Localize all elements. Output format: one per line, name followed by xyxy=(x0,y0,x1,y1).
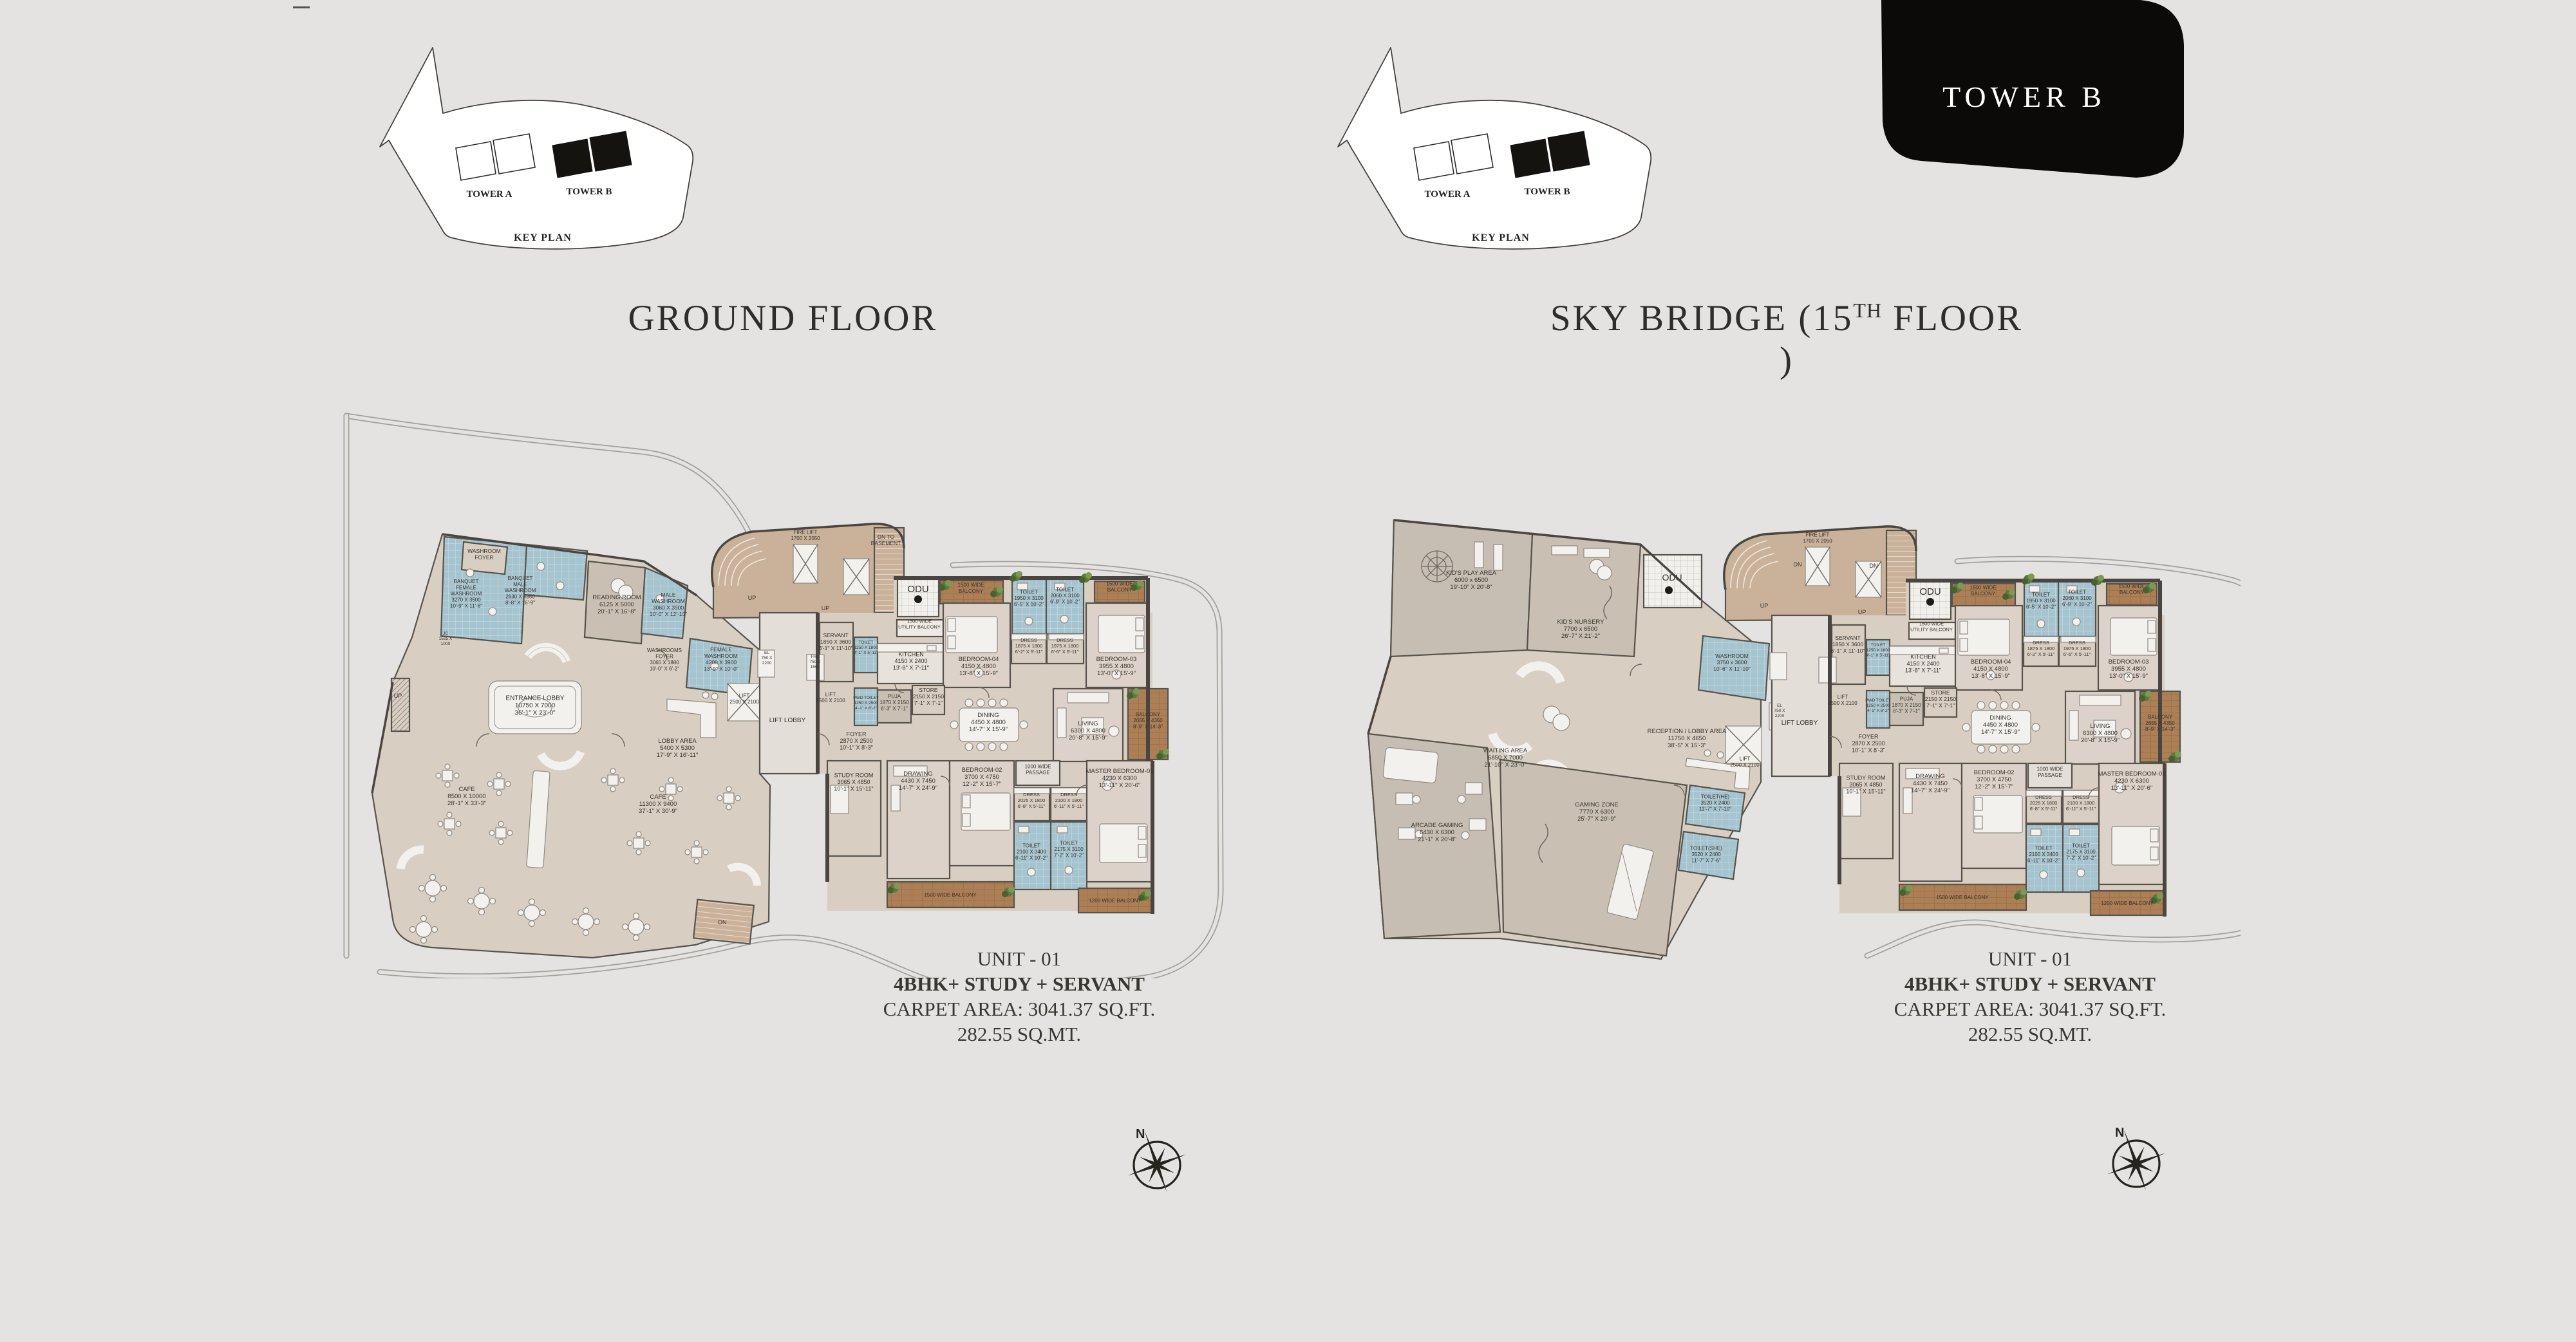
svg-text:BANQUETMALEWASHROOM2630 X 4850: BANQUETMALEWASHROOM2630 X 48508'-8" X 16… xyxy=(505,575,536,606)
crop-mark xyxy=(293,6,310,8)
ground-unit-info: UNIT - 01 4BHK+ STUDY + SERVANT CARPET A… xyxy=(762,946,1277,1047)
unit-carpet-area-sqmt: 282.55 SQ.MT. xyxy=(762,1021,1277,1047)
unit-carpet-area-sqft: CARPET AREA: 3041.37 SQ.FT. xyxy=(762,996,1277,1021)
unit-number: UNIT - 01 xyxy=(762,946,1277,971)
ground-floor-plan: WASHROOMFOYERBANQUETFEMALEWASHROOM3270 X… xyxy=(335,373,1236,978)
svg-text:1000 WIDEPASSAGE: 1000 WIDEPASSAGE xyxy=(1025,763,1051,776)
compass-left: N xyxy=(1120,1121,1191,1198)
svg-text:WASHROOM3750 x 360010'-6" X 11: WASHROOM3750 x 360010'-6" X 11'-10" xyxy=(1713,653,1751,672)
compass-n-label: N xyxy=(2115,1126,2124,1140)
svg-text:FIRE LIFT1700 X 2050: FIRE LIFT1700 X 2050 xyxy=(1803,532,1832,544)
svg-text:ODU: ODU xyxy=(907,584,928,595)
svg-text:BEDROOM-023700 X 475012'-2" X: BEDROOM-023700 X 475012'-2" X 15'-7" xyxy=(1974,769,2015,790)
key-plan-caption: KEY PLAN xyxy=(1472,232,1530,243)
key-plan-left: TOWER A TOWER B KEY PLAN xyxy=(361,39,721,251)
key-plan-tower-a-label: TOWER A xyxy=(1425,189,1471,200)
unit-config: 4BHK+ STUDY + SERVANT xyxy=(1772,971,2288,996)
svg-text:1500 WIDEBALCONY: 1500 WIDEBALCONY xyxy=(2119,583,2145,595)
key-plan-right: TOWER A TOWER B KEY PLAN xyxy=(1319,39,1679,251)
svg-text:FHC750 X1500: FHC750 X1500 xyxy=(810,655,822,669)
key-plan-tower-a-label: TOWER A xyxy=(467,189,512,200)
svg-text:PWD TOILET1250 X 25004'-1" X 8: PWD TOILET1250 X 25004'-1" X 8'-2" xyxy=(853,696,879,711)
key-plan-tower-b-label: TOWER B xyxy=(1525,187,1570,197)
svg-text:UP: UP xyxy=(1858,609,1866,615)
svg-text:LOBBY AREA5400 X 530017'-9" X: LOBBY AREA5400 X 530017'-9" X 16'-11" xyxy=(657,738,699,759)
unit-number: UNIT - 01 xyxy=(1772,946,2288,971)
svg-text:BALCONY2655 X 43508'-9" X 14'-: BALCONY2655 X 43508'-9" X 14'-3" xyxy=(2145,714,2175,732)
svg-text:ODU: ODU xyxy=(1662,572,1682,582)
svg-text:1500 WIDEBALCONY: 1500 WIDEBALCONY xyxy=(958,582,984,594)
sky-amenity-wing xyxy=(1368,520,1786,959)
svg-text:DN: DN xyxy=(1794,561,1802,568)
svg-text:FIRE LIFT1700 X 2050: FIRE LIFT1700 X 2050 xyxy=(791,529,820,541)
ground-floor-title: GROUND FLOOR xyxy=(538,297,1028,339)
svg-text:STUDY ROOM3065 X 485010'-1" X: STUDY ROOM3065 X 485010'-1" X 15'-11" xyxy=(834,772,873,792)
brochure-page: TOWER B TOWER A TOWER B KEY PLAN TOWER A… xyxy=(0,0,2576,1342)
tower-b-badge: TOWER B xyxy=(1845,0,2188,193)
svg-text:LIFT LOBBY: LIFT LOBBY xyxy=(1782,720,1818,727)
svg-text:DN: DN xyxy=(1870,563,1878,569)
compass-rose-icon xyxy=(2100,1120,2170,1197)
svg-text:UP: UP xyxy=(822,605,830,611)
svg-text:UP: UP xyxy=(748,595,757,601)
svg-text:1500 WIDE BALCONY: 1500 WIDE BALCONY xyxy=(924,892,977,898)
svg-text:1200 WIDE BALCONY: 1200 WIDE BALCONY xyxy=(2101,900,2154,906)
svg-text:WASHROOMSFOYER3060 X 188010'-0: WASHROOMSFOYER3060 X 188010'-0" X 6'-2" xyxy=(647,648,682,672)
svg-text:BANQUETFEMALEWASHROOM3270 X 35: BANQUETFEMALEWASHROOM3270 X 350010'-9" X… xyxy=(450,579,482,609)
compass-right: N xyxy=(2100,1120,2170,1197)
svg-text:UP: UP xyxy=(394,693,402,699)
svg-text:BEDROOM-044150 X 480013'-8" X: BEDROOM-044150 X 480013'-8" X 15'-9" xyxy=(959,656,999,677)
svg-text:1500 WIDEBALCONY: 1500 WIDEBALCONY xyxy=(1970,584,1997,597)
svg-text:TOILET(SHE)3520 X 240011'-7" X: TOILET(SHE)3520 X 240011'-7" X 7'-6" xyxy=(1690,846,1722,864)
svg-text:LIFT LOBBY: LIFT LOBBY xyxy=(769,717,806,724)
sky-bridge-title: SKY BRIDGE (15TH FLOOR ) xyxy=(1542,297,2031,381)
svg-text:DRAWING4430 X 745014'-7" X 24': DRAWING4430 X 745014'-7" X 24'-9" xyxy=(1911,773,1950,794)
svg-text:1000 WIDEPASSAGE: 1000 WIDEPASSAGE xyxy=(2037,766,2064,778)
compass-n-label: N xyxy=(1136,1127,1145,1141)
svg-text:WAITING AREA6850 X 700021'-10": WAITING AREA6850 X 700021'-10" X 23'-0" xyxy=(1483,747,1528,769)
svg-text:SERVANT1850 X 36006'-1" X 11'-: SERVANT1850 X 36006'-1" X 11'-10" xyxy=(1830,635,1865,654)
svg-text:KITCHEN4150 X 240013'-8" X 7'-: KITCHEN4150 X 240013'-8" X 7'-11" xyxy=(893,651,929,671)
svg-text:1200 WIDE BALCONY: 1200 WIDE BALCONY xyxy=(1089,898,1142,904)
svg-text:UP: UP xyxy=(1760,602,1769,609)
svg-text:PWD TOILET1250 X 25004'-1" X 8: PWD TOILET1250 X 25004'-1" X 8'-2" xyxy=(1865,698,1891,713)
svg-text:TOILET(HE)3520 X 240011'-7" X: TOILET(HE)3520 X 240011'-7" X 7'-10" xyxy=(1699,794,1731,812)
svg-text:BEDROOM-023700 X 475012'-2" X: BEDROOM-023700 X 475012'-2" X 15'-7" xyxy=(962,767,1002,788)
key-plan-caption: KEY PLAN xyxy=(514,232,572,243)
svg-text:BEDROOM-044150 X 480013'-8" X: BEDROOM-044150 X 480013'-8" X 15'-9" xyxy=(1971,658,2011,680)
svg-text:KITCHEN4150 X 240013'-8" X 7'-: KITCHEN4150 X 240013'-8" X 7'-11" xyxy=(1905,654,1941,674)
svg-text:BEDROOM-033955 X 480013'-0" X: BEDROOM-033955 X 480013'-0" X 15'-9" xyxy=(1096,656,1137,677)
svg-text:ODU: ODU xyxy=(1919,586,1941,597)
badge-label: TOWER B xyxy=(1942,80,2106,113)
unit-config: 4BHK+ STUDY + SERVANT xyxy=(762,971,1277,996)
sky-unit-info: UNIT - 01 4BHK+ STUDY + SERVANT CARPET A… xyxy=(1772,946,2288,1047)
compass-rose-icon xyxy=(1120,1121,1191,1198)
svg-text:SERVANT1850 X 36006'-1" X 11'-: SERVANT1850 X 36006'-1" X 11'-10" xyxy=(818,632,852,651)
svg-text:KID'S NURSERY7700 x 650026'-7": KID'S NURSERY7700 x 650026'-7" X 21'-2" xyxy=(1557,619,1605,640)
unit-carpet-area-sqmt: 282.55 SQ.MT. xyxy=(1772,1021,2288,1047)
svg-text:STUDY ROOM3065 X 485010'-1" X: STUDY ROOM3065 X 485010'-1" X 15'-11" xyxy=(1846,775,1885,795)
svg-text:BEDROOM-033955 X 480013'-0" X: BEDROOM-033955 X 480013'-0" X 15'-9" xyxy=(2109,658,2149,680)
sky-bridge-plan: KID'S PLAY AREA6000 x 650019'-10" X 20'-… xyxy=(1339,373,2241,978)
svg-text:BALCONY2655 X 43508'-9" X 14'-: BALCONY2655 X 43508'-9" X 14'-3" xyxy=(1133,712,1163,730)
key-plan-tower-b-label: TOWER B xyxy=(567,187,612,197)
unit-carpet-area-sqft: CARPET AREA: 3041.37 SQ.FT. xyxy=(1772,996,2288,1021)
svg-text:GAMING ZONE7770 X 630025'-7" X: GAMING ZONE7770 X 630025'-7" X 20'-9" xyxy=(1575,801,1619,823)
svg-text:DRAWING4430 X 745014'-7" X 24': DRAWING4430 X 745014'-7" X 24'-9" xyxy=(899,770,937,792)
svg-text:DN: DN xyxy=(719,919,727,926)
svg-text:READING ROOM6125 X 500020'-1": READING ROOM6125 X 500020'-1" X 16'-8" xyxy=(592,594,641,615)
svg-text:1500 WIDE BALCONY: 1500 WIDE BALCONY xyxy=(1936,895,1989,900)
svg-text:1500 WIDEBALCONY: 1500 WIDEBALCONY xyxy=(1107,581,1133,593)
